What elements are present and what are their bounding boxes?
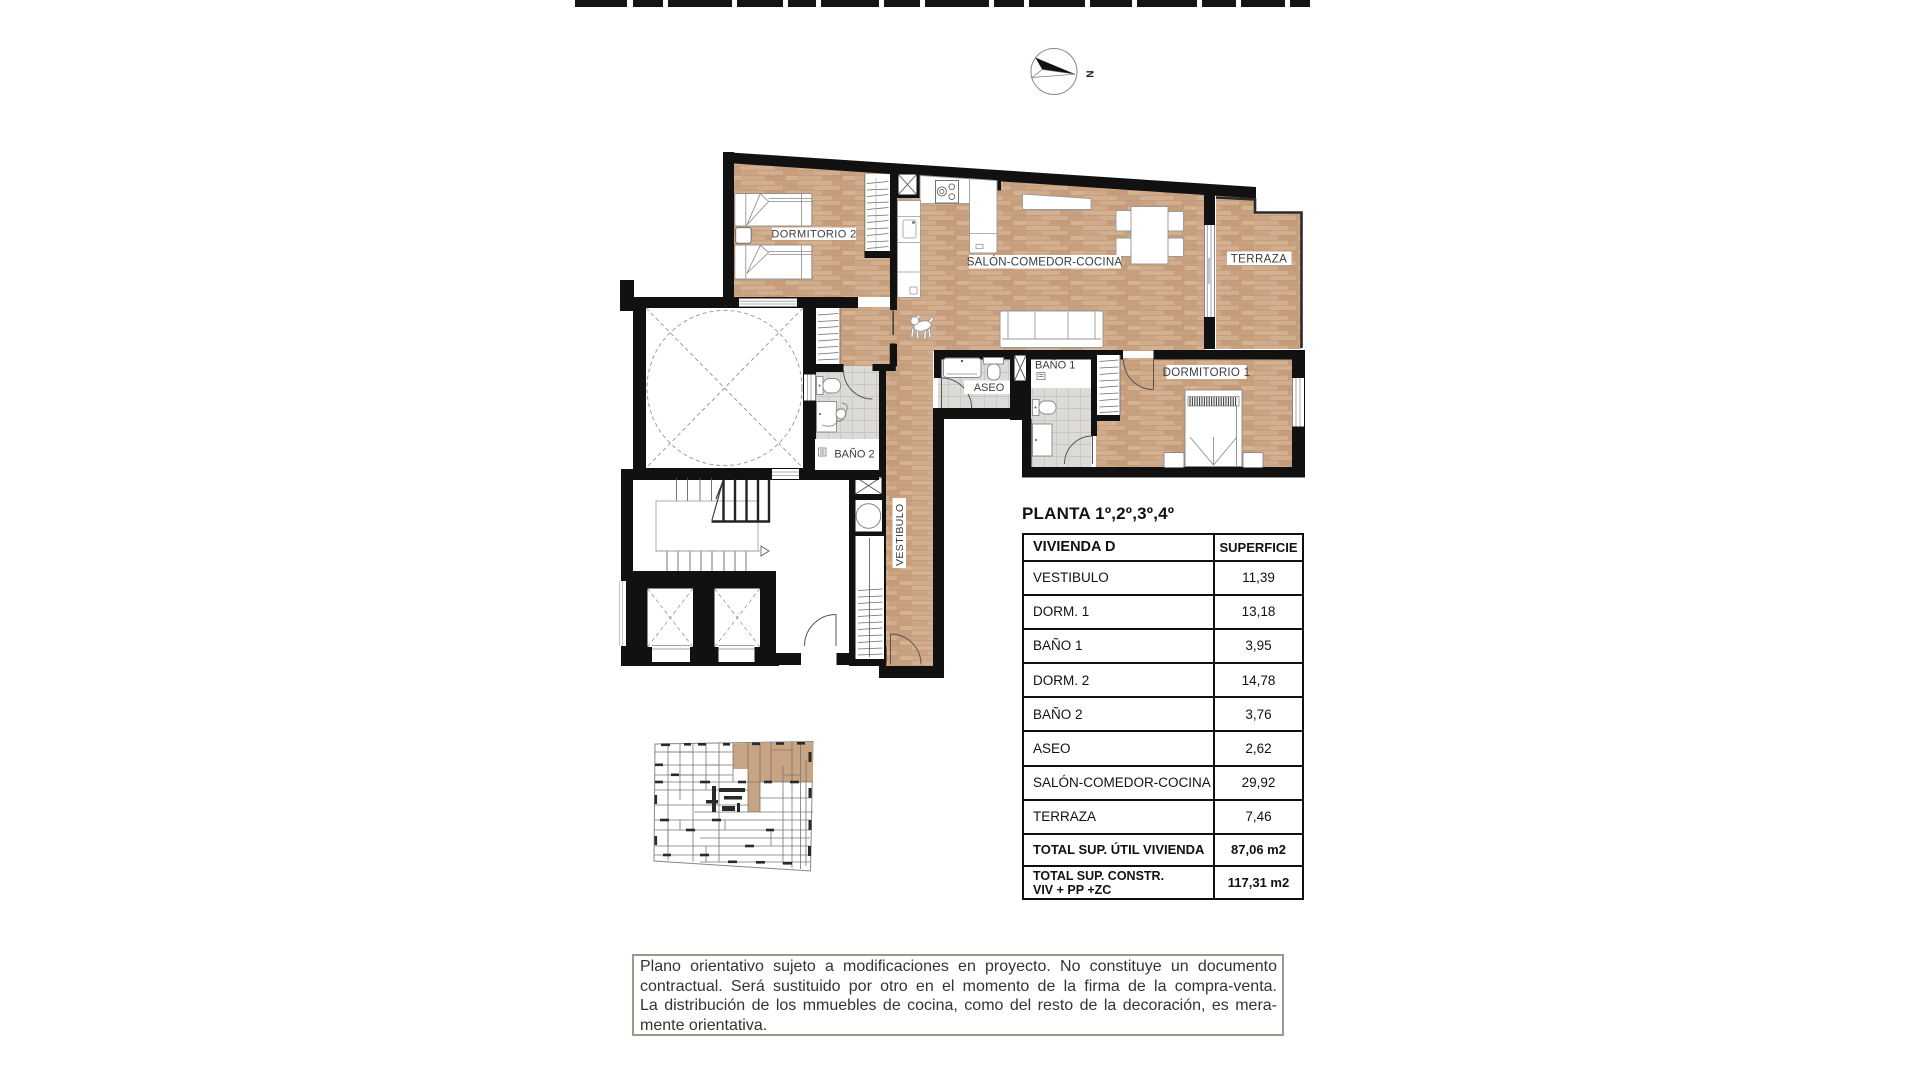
svg-text:BAÑO 2: BAÑO 2 [834, 448, 874, 461]
svg-text:ASEO: ASEO [974, 382, 1005, 394]
svg-text:DORMITORIO 2: DORMITORIO 2 [771, 229, 856, 241]
svg-text:BAÑO 1: BAÑO 1 [1035, 359, 1075, 372]
svg-text:TERRAZA: TERRAZA [1231, 254, 1287, 266]
svg-text:N: N [1084, 71, 1095, 78]
svg-text:DORMITORIO 1: DORMITORIO 1 [1163, 367, 1251, 379]
svg-text:VESTIBULO: VESTIBULO [894, 503, 906, 566]
svg-text:SALÓN-COMEDOR-COCINA: SALÓN-COMEDOR-COCINA [967, 256, 1123, 269]
